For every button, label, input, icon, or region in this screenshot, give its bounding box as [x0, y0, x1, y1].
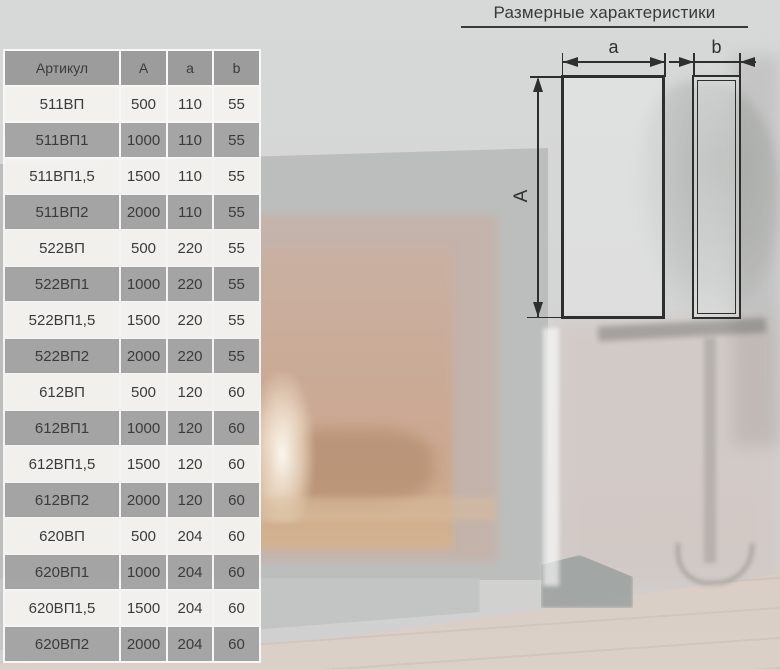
dim-b-arrow-left-icon — [740, 57, 755, 67]
cell-value: 204 — [168, 555, 212, 589]
cell-value: 60 — [214, 591, 259, 625]
dimension-drawing: a b A — [0, 0, 780, 400]
cell-value: 60 — [214, 519, 259, 553]
cell-value: 60 — [214, 555, 259, 589]
cell-value: 2000 — [121, 627, 166, 661]
dim-a-ext-right — [664, 53, 666, 77]
cell-value: 120 — [168, 411, 212, 445]
dim-a-ext-left — [562, 53, 564, 77]
table-row: 612ВП1,5150012060 — [5, 447, 259, 481]
table-row: 620ВП50020460 — [5, 519, 259, 553]
panel-side-view — [692, 75, 741, 319]
dim-b-ext-left — [693, 53, 695, 77]
dim-a-line — [563, 61, 664, 63]
cell-value: 60 — [214, 627, 259, 661]
cell-value: 120 — [168, 447, 212, 481]
cell-value: 204 — [168, 519, 212, 553]
dim-a-label: a — [563, 38, 664, 56]
cell-value: 1000 — [121, 411, 166, 445]
cell-value: 1500 — [121, 591, 166, 625]
table-row: 612ВП2200012060 — [5, 483, 259, 517]
panel-front-view — [561, 75, 665, 319]
dim-height-ext-bottom — [527, 317, 563, 319]
dim-b-arrow-right-icon — [679, 57, 694, 67]
cell-value: 2000 — [121, 483, 166, 517]
cell-value: 500 — [121, 519, 166, 553]
table-row: 620ВП1,5150020460 — [5, 591, 259, 625]
cell-article: 612ВП1 — [5, 411, 119, 445]
cell-article: 620ВП2 — [5, 627, 119, 661]
dim-a-arrow-right-icon — [650, 57, 665, 67]
cell-article: 612ВП1,5 — [5, 447, 119, 481]
cell-value: 60 — [214, 447, 259, 481]
cell-value: 60 — [214, 483, 259, 517]
dim-b-label: b — [693, 38, 740, 56]
table-row: 620ВП1100020460 — [5, 555, 259, 589]
background-fire-logs — [263, 428, 433, 506]
product-dimensions-section: Размерные характеристики АртикулAab 511В… — [0, 0, 780, 669]
background-hearth-top — [238, 497, 496, 521]
dim-b-ext-right — [739, 53, 741, 77]
cell-article: 620ВП1,5 — [5, 591, 119, 625]
cell-article: 620ВП — [5, 519, 119, 553]
cell-article: 620ВП1 — [5, 555, 119, 589]
cell-value: 1000 — [121, 555, 166, 589]
dim-height-arrow-up-icon — [533, 77, 543, 92]
background-chair-leg-curve — [676, 543, 754, 585]
dim-height-line — [537, 79, 539, 317]
background-hearth-box — [541, 555, 633, 608]
table-row: 620ВП2200020460 — [5, 627, 259, 661]
table-row: 612ВП1100012060 — [5, 411, 259, 445]
cell-value: 1500 — [121, 447, 166, 481]
cell-value: 60 — [214, 411, 259, 445]
cell-value: 204 — [168, 627, 212, 661]
cell-value: 204 — [168, 591, 212, 625]
cell-article: 612ВП2 — [5, 483, 119, 517]
dim-height-ext-top — [530, 76, 563, 78]
dim-height-arrow-down-icon — [533, 302, 543, 317]
cell-value: 120 — [168, 483, 212, 517]
dim-a-arrow-left-icon — [563, 57, 578, 67]
dim-height-label: A — [513, 184, 531, 208]
panel-side-view-inner-outline — [697, 80, 736, 314]
